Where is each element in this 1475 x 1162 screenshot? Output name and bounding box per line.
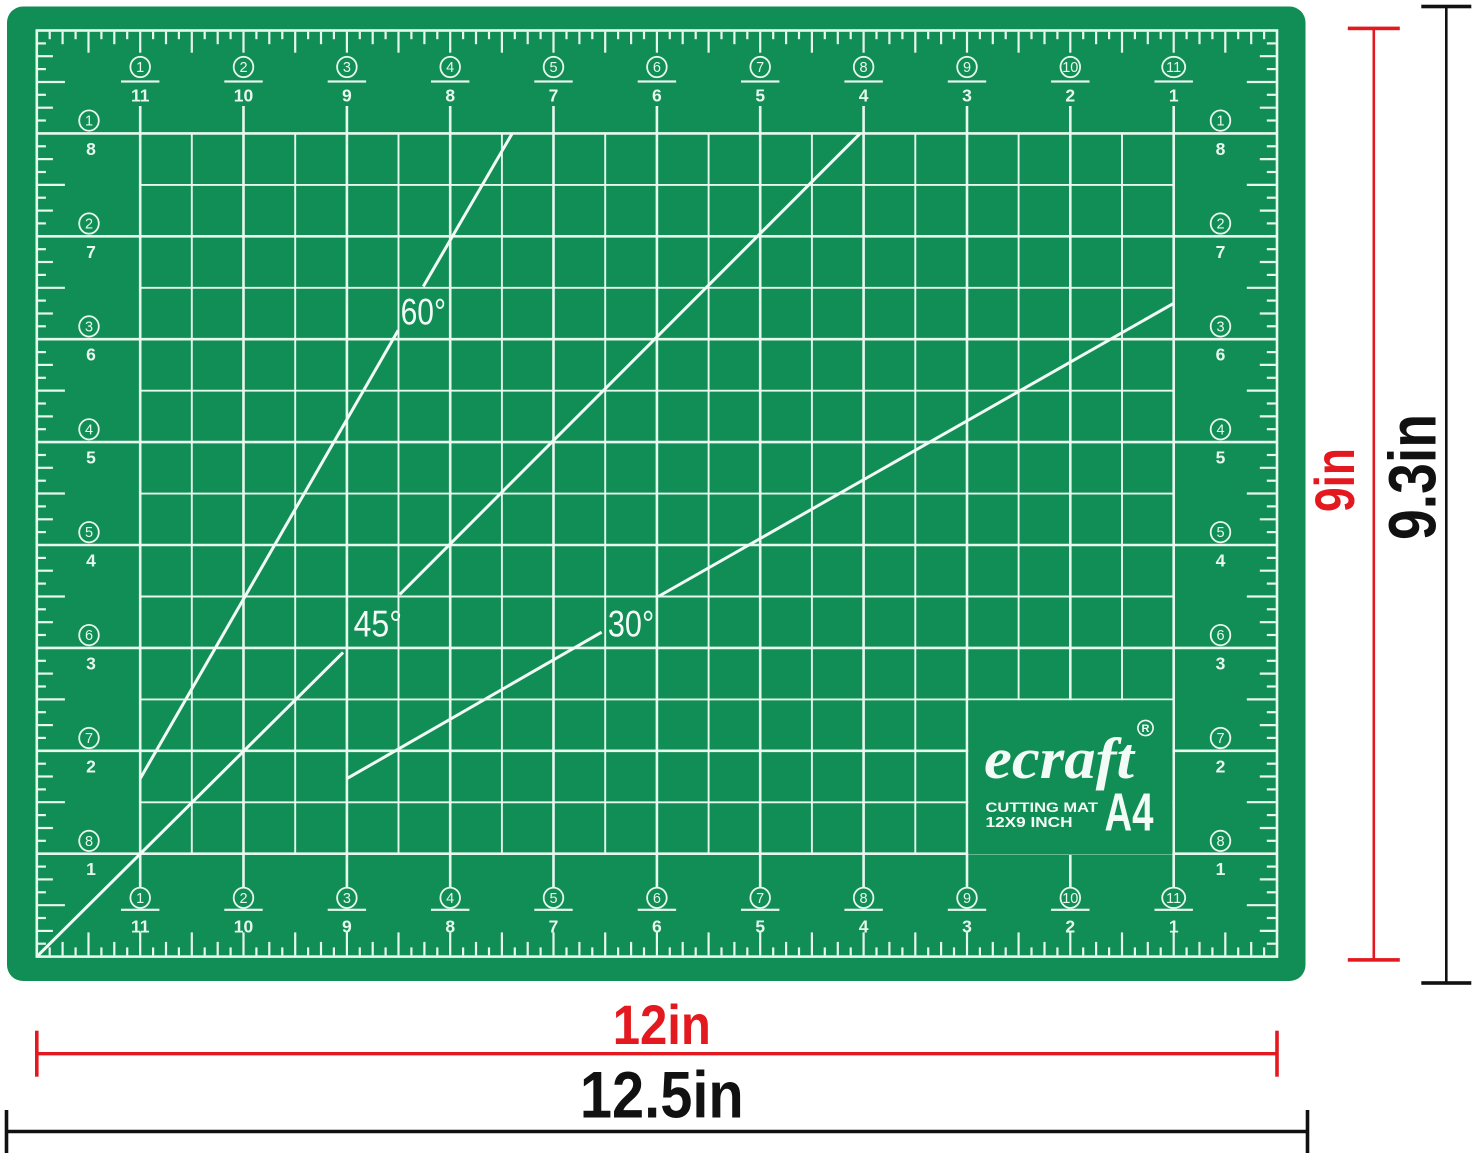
svg-text:30°: 30° <box>608 603 654 644</box>
svg-text:6: 6 <box>653 891 661 907</box>
svg-text:2: 2 <box>1216 217 1224 233</box>
svg-text:60°: 60° <box>401 292 446 333</box>
svg-text:4: 4 <box>85 422 93 438</box>
svg-text:12in: 12in <box>613 993 711 1056</box>
svg-text:10: 10 <box>234 86 254 106</box>
svg-text:7: 7 <box>549 917 559 937</box>
svg-text:2: 2 <box>1065 86 1075 106</box>
svg-text:1: 1 <box>1216 859 1226 879</box>
svg-text:A4: A4 <box>1105 783 1154 843</box>
svg-text:1: 1 <box>136 60 144 76</box>
svg-text:9.3in: 9.3in <box>1376 414 1451 540</box>
svg-text:5: 5 <box>549 891 557 907</box>
svg-text:3: 3 <box>86 653 96 673</box>
svg-text:2: 2 <box>1065 917 1075 937</box>
svg-text:5: 5 <box>549 60 557 76</box>
svg-text:6: 6 <box>86 345 96 365</box>
svg-text:3: 3 <box>343 891 351 907</box>
svg-text:6: 6 <box>85 628 93 644</box>
svg-text:1: 1 <box>86 859 96 879</box>
svg-text:10: 10 <box>1062 60 1078 76</box>
svg-text:8: 8 <box>860 60 868 76</box>
svg-text:8: 8 <box>86 139 96 159</box>
svg-text:7: 7 <box>549 86 559 106</box>
svg-text:1: 1 <box>1169 917 1179 937</box>
svg-text:3: 3 <box>343 60 351 76</box>
svg-text:8: 8 <box>445 917 455 937</box>
svg-text:3: 3 <box>962 86 972 106</box>
svg-text:1: 1 <box>1216 114 1224 130</box>
svg-text:2: 2 <box>86 756 96 776</box>
svg-text:1: 1 <box>85 114 93 130</box>
svg-text:9in: 9in <box>1303 448 1366 512</box>
svg-text:4: 4 <box>1216 551 1226 571</box>
svg-text:9: 9 <box>342 917 352 937</box>
svg-text:5: 5 <box>1216 448 1226 468</box>
svg-text:6: 6 <box>653 60 661 76</box>
svg-text:3: 3 <box>962 917 972 937</box>
svg-text:3: 3 <box>1216 319 1224 335</box>
svg-text:5: 5 <box>755 917 765 937</box>
svg-text:6: 6 <box>652 86 662 106</box>
svg-text:6: 6 <box>1216 628 1224 644</box>
svg-text:45°: 45° <box>354 603 402 644</box>
svg-text:11: 11 <box>131 917 150 937</box>
svg-text:4: 4 <box>446 60 454 76</box>
svg-text:4: 4 <box>1216 422 1224 438</box>
svg-text:8: 8 <box>445 86 455 106</box>
svg-text:5: 5 <box>86 448 96 468</box>
svg-text:2: 2 <box>239 60 247 76</box>
svg-text:R: R <box>1142 723 1150 735</box>
svg-text:CUTTING MAT: CUTTING MAT <box>986 799 1099 815</box>
svg-text:11: 11 <box>1166 60 1181 76</box>
svg-text:6: 6 <box>1216 345 1226 365</box>
svg-text:2: 2 <box>1216 756 1226 776</box>
svg-text:1: 1 <box>136 891 144 907</box>
svg-text:5: 5 <box>755 86 765 106</box>
svg-text:7: 7 <box>1216 242 1226 262</box>
svg-text:11: 11 <box>1166 891 1181 907</box>
svg-text:4: 4 <box>859 86 869 106</box>
svg-text:7: 7 <box>756 60 764 76</box>
svg-text:ecraft: ecraft <box>984 726 1136 791</box>
svg-text:9: 9 <box>342 86 352 106</box>
svg-text:12X9 INCH: 12X9 INCH <box>986 815 1073 831</box>
svg-text:3: 3 <box>1216 653 1226 673</box>
svg-text:2: 2 <box>239 891 247 907</box>
svg-text:10: 10 <box>1062 891 1078 907</box>
svg-text:6: 6 <box>652 917 662 937</box>
svg-text:7: 7 <box>86 242 96 262</box>
svg-text:8: 8 <box>85 834 93 850</box>
svg-text:11: 11 <box>131 86 150 106</box>
svg-text:9: 9 <box>963 60 971 76</box>
svg-text:2: 2 <box>85 217 93 233</box>
svg-text:4: 4 <box>446 891 454 907</box>
svg-text:8: 8 <box>860 891 868 907</box>
svg-text:9: 9 <box>963 891 971 907</box>
svg-text:8: 8 <box>1216 139 1226 159</box>
svg-text:5: 5 <box>85 525 93 541</box>
svg-text:3: 3 <box>85 319 93 335</box>
svg-text:7: 7 <box>85 731 93 747</box>
svg-text:7: 7 <box>1216 731 1224 747</box>
svg-text:1: 1 <box>1169 86 1179 106</box>
svg-text:4: 4 <box>86 551 96 571</box>
svg-text:8: 8 <box>1216 834 1224 850</box>
svg-text:5: 5 <box>1216 525 1224 541</box>
svg-text:12.5in: 12.5in <box>580 1057 744 1131</box>
svg-text:7: 7 <box>756 891 764 907</box>
svg-text:10: 10 <box>234 917 254 937</box>
svg-text:4: 4 <box>859 917 869 937</box>
